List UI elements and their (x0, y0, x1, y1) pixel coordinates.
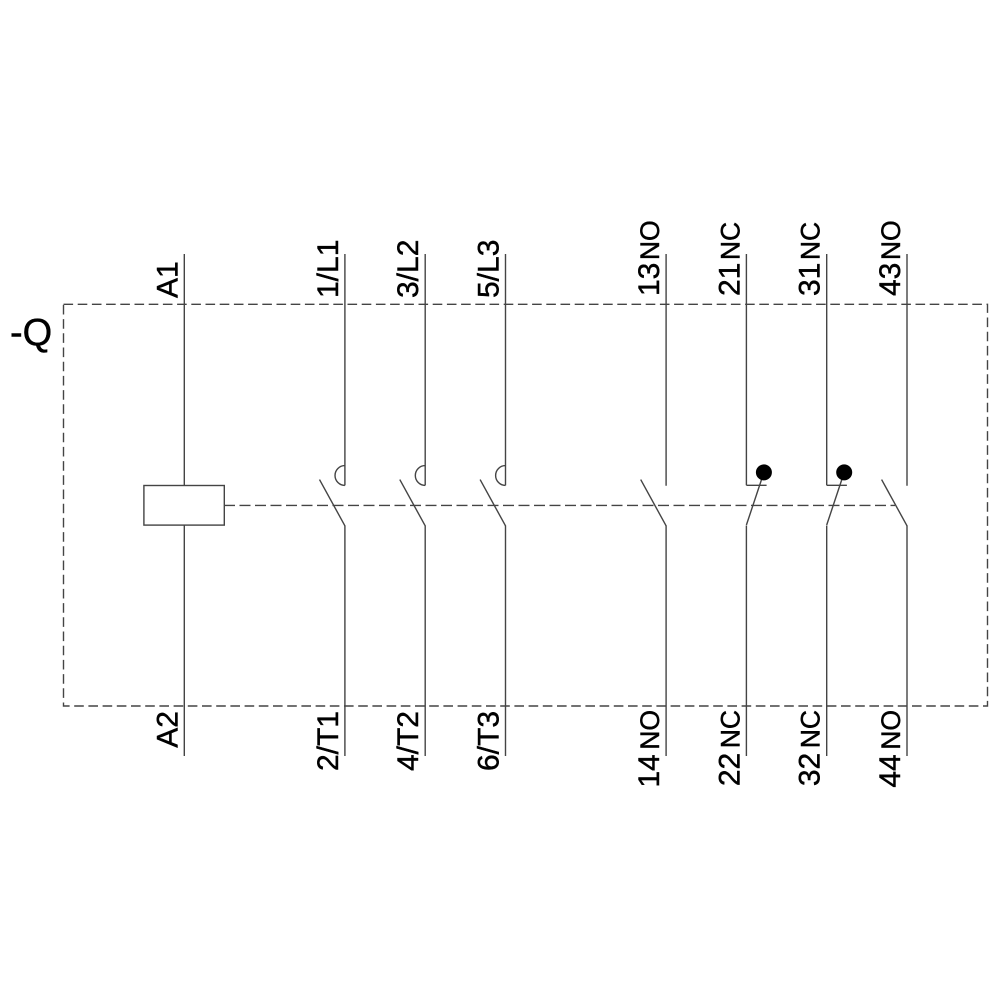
svg-text:2/T1: 2/T1 (312, 711, 345, 771)
svg-text:32NC: 32NC (794, 710, 827, 786)
svg-text:A1: A1 (151, 261, 184, 298)
svg-text:22NC: 22NC (713, 710, 746, 786)
svg-text:21NC: 21NC (713, 222, 746, 296)
svg-text:-Q: -Q (10, 312, 52, 354)
svg-text:A2: A2 (151, 711, 184, 748)
svg-text:31NC: 31NC (794, 222, 827, 296)
svg-text:44NO: 44NO (874, 710, 907, 788)
svg-text:14NO: 14NO (633, 710, 666, 788)
svg-text:43NO: 43NO (874, 220, 907, 296)
svg-text:1/L1: 1/L1 (312, 240, 345, 298)
svg-text:4/T2: 4/T2 (392, 711, 425, 771)
svg-text:3/L2: 3/L2 (392, 240, 425, 298)
svg-text:13NO: 13NO (633, 220, 666, 296)
svg-text:6/T3: 6/T3 (473, 711, 506, 771)
svg-text:5/L3: 5/L3 (473, 240, 506, 298)
